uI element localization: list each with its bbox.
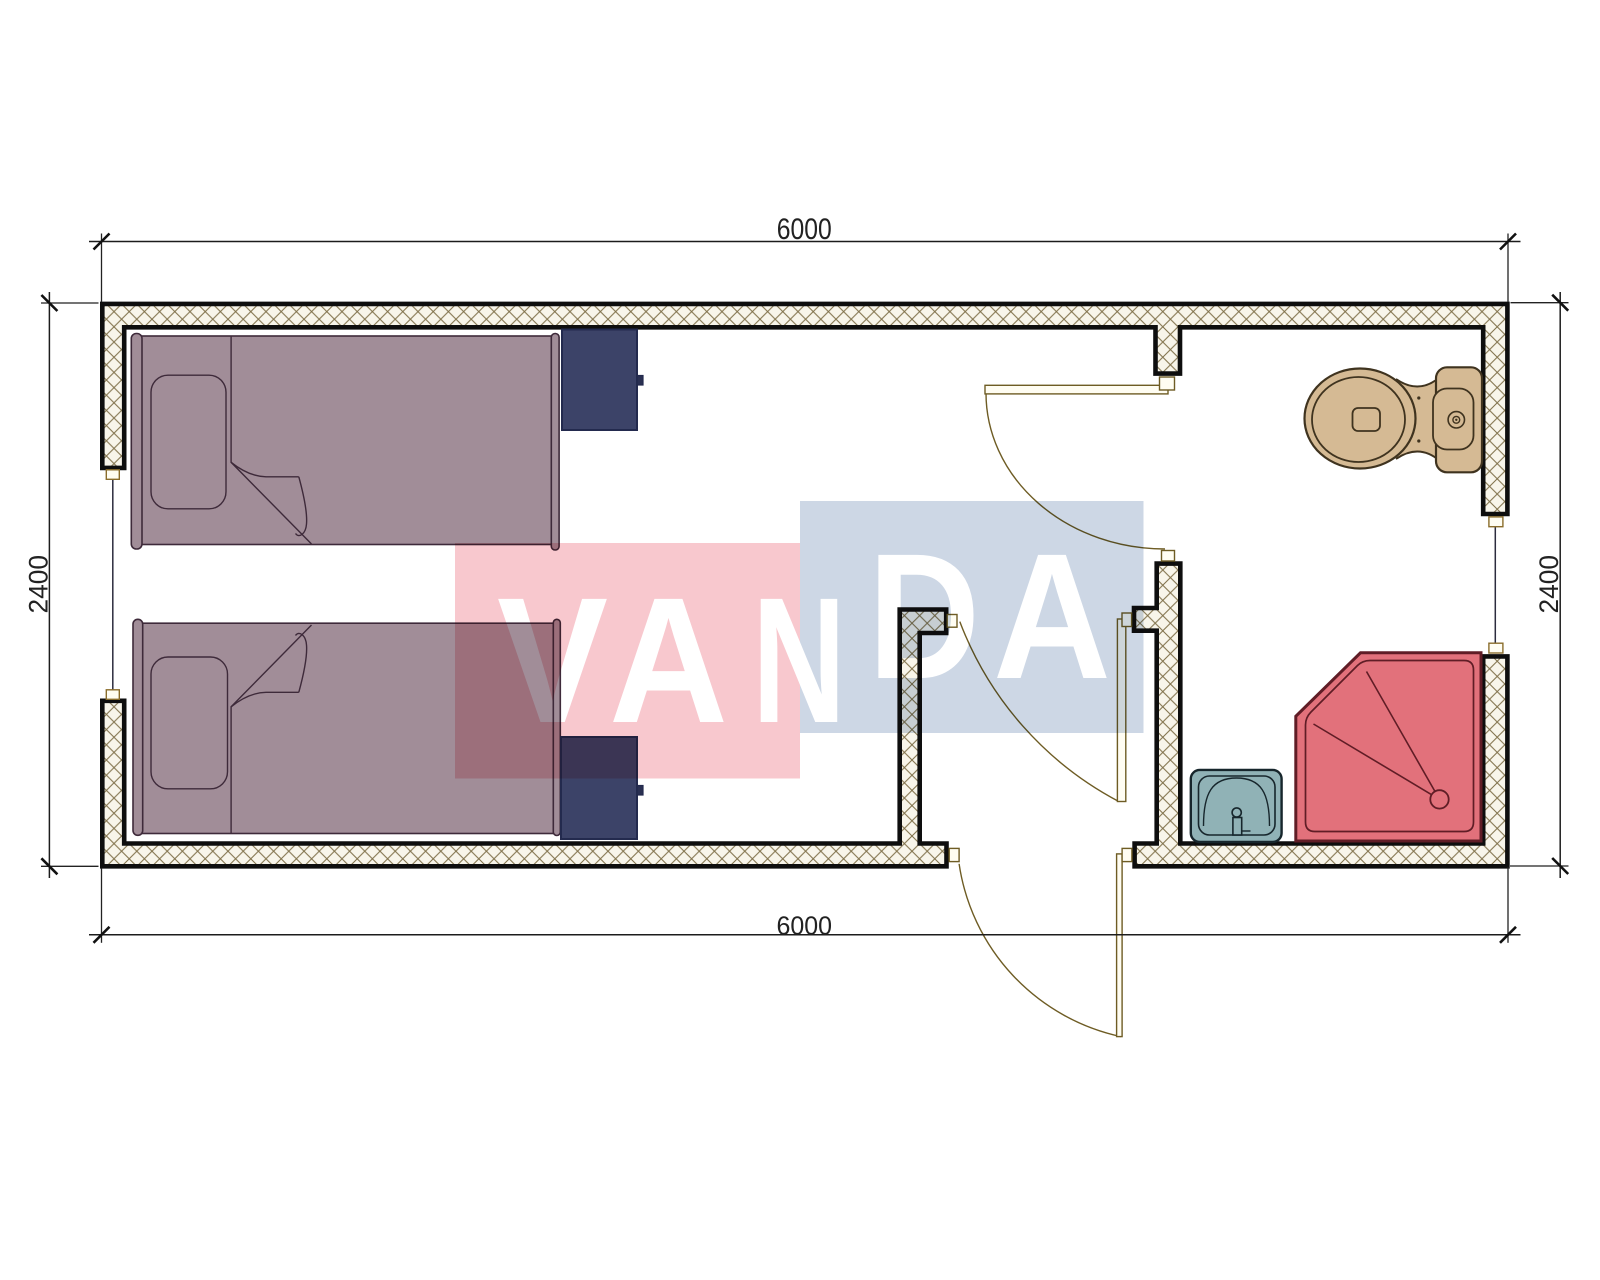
svg-text:6000: 6000 <box>777 213 832 246</box>
svg-text:2400: 2400 <box>1534 555 1564 614</box>
svg-text:2400: 2400 <box>24 555 54 614</box>
svg-text:6000: 6000 <box>777 910 833 940</box>
